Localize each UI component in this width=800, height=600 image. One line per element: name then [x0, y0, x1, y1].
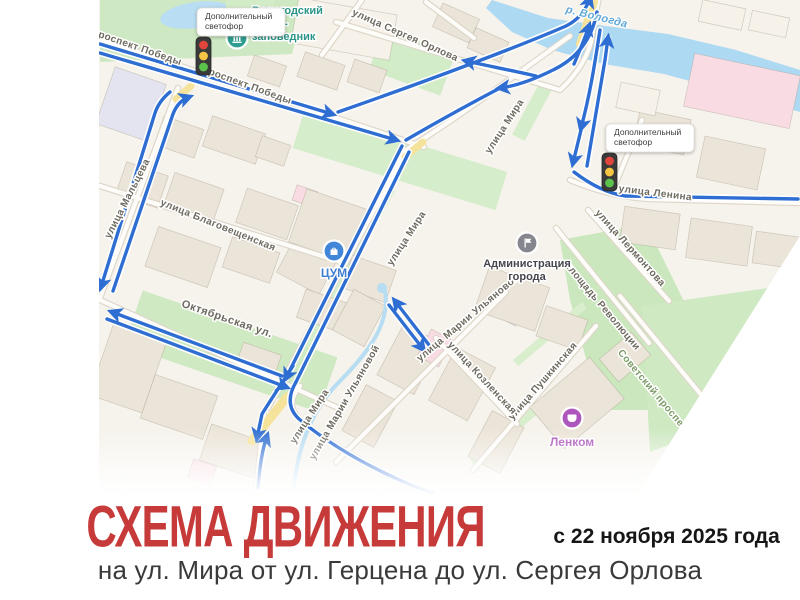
red-light [605, 157, 614, 166]
green-light [605, 179, 614, 188]
note-text: Дополнительный [614, 127, 682, 137]
poster: проспект Победыпроспект Победыулица Серг… [0, 0, 800, 600]
poi-label-line: города [508, 271, 546, 283]
poi-label-line: Администрация [483, 258, 571, 270]
poster-title: СХЕМА ДВИЖЕНИЯ [87, 500, 485, 552]
note-text: светофор [205, 21, 243, 31]
yellow-light [605, 168, 614, 177]
poster-subtitle: на ул. Мира от ул. Герцена до ул. Сергея… [0, 555, 800, 586]
yellow-light [199, 52, 208, 61]
mask-glyph [568, 415, 577, 423]
city-map: проспект Победыпроспект Победыулица Серг… [0, 0, 800, 500]
caption: СХЕМА ДВИЖЕНИЯ с 22 ноября 2025 года на … [0, 500, 800, 586]
note-text: Дополнительный [205, 11, 273, 21]
poi-label: ЦУМ [321, 266, 347, 280]
poster-date: с 22 ноября 2025 года [551, 525, 779, 552]
red-light [199, 41, 208, 50]
note-text: светофор [614, 137, 652, 147]
administration-icon [517, 233, 538, 254]
poi-label-line: ЦУМ [321, 266, 347, 280]
traffic-light-icon [196, 37, 211, 75]
building [686, 218, 753, 266]
caption-line1: СХЕМА ДВИЖЕНИЯ с 22 ноября 2025 года [0, 500, 800, 552]
traffic-light-icon [602, 153, 617, 191]
green-light [199, 63, 208, 72]
